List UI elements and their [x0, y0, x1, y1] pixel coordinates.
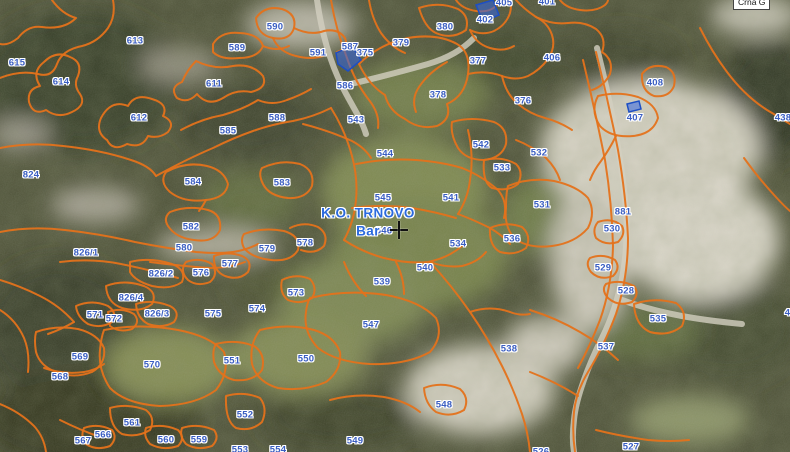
parcel-boundary — [516, 140, 560, 180]
parcel-boundary — [0, 280, 74, 322]
parcel-boundary — [452, 119, 507, 160]
parcel-boundary — [166, 208, 220, 241]
parcel-boundary — [44, 364, 104, 373]
parcel-boundary — [596, 430, 689, 441]
crosshair-icon — [390, 221, 408, 239]
parcel-boundary — [100, 327, 226, 407]
parcel-boundary — [0, 0, 76, 44]
parcel-boundary — [263, 46, 289, 49]
road — [622, 300, 742, 324]
parcel-boundary — [560, 0, 608, 10]
parcel-highlight[interactable] — [627, 101, 641, 112]
parcel-boundary — [484, 159, 521, 190]
parcel-boundary — [251, 327, 340, 390]
parcel-boundary — [29, 54, 82, 115]
parcel-boundary — [0, 310, 29, 372]
parcel-boundary — [260, 162, 312, 198]
roads — [317, 0, 742, 452]
parcel-boundary — [590, 136, 616, 180]
parcel-boundary — [588, 256, 618, 278]
parcel-boundary — [136, 302, 177, 326]
parcel-boundary — [470, 309, 530, 315]
parcel-boundary — [273, 38, 323, 58]
parcel-boundary — [424, 385, 466, 415]
parcel-highlight[interactable] — [476, 0, 499, 22]
parcel-boundary — [181, 426, 216, 448]
parcel-boundary — [303, 124, 371, 158]
parcel-highlight[interactable] — [336, 46, 361, 71]
parcel-boundary — [60, 420, 100, 437]
map-canvas[interactable]: 6156136146126115895855885905915873753793… — [0, 0, 790, 452]
parcel-boundary — [344, 262, 366, 296]
highlighted-parcels — [336, 0, 641, 112]
parcel-boundary — [356, 160, 462, 169]
parcel-boundary — [419, 5, 467, 36]
parcel-boundary — [226, 394, 265, 429]
parcel-boundary — [0, 404, 46, 452]
parcel-boundary — [700, 28, 790, 124]
parcel-boundary — [359, 36, 469, 127]
parcel-boundary — [106, 283, 154, 310]
map-tooltip: Crna G — [733, 0, 770, 10]
parcel-boundary — [642, 66, 675, 96]
parcel-boundary — [99, 97, 171, 147]
parcel-boundary — [330, 396, 420, 412]
parcel-boundary — [430, 262, 530, 452]
parcel-boundary — [306, 293, 439, 364]
parcel-boundary — [163, 164, 228, 200]
parcel-boundary — [183, 260, 215, 284]
parcel-boundary — [506, 180, 592, 247]
parcel-boundary — [396, 262, 404, 294]
parcel-boundary — [594, 220, 623, 243]
parcel-boundary — [502, 76, 572, 130]
parcel-boundary — [174, 61, 264, 102]
parcel-boundary — [331, 108, 357, 240]
parcel-boundary — [594, 94, 658, 137]
parcel-boundary — [242, 230, 298, 261]
parcel-boundary — [344, 240, 462, 263]
road — [573, 48, 627, 452]
parcel-boundary — [256, 8, 295, 39]
parcel-boundary — [352, 206, 456, 218]
parcel-boundary — [458, 214, 510, 244]
parcel-boundary — [213, 33, 263, 59]
parcel-boundary — [181, 89, 311, 130]
parcel-boundary — [0, 144, 156, 176]
parcel-boundary — [530, 372, 578, 396]
parcel-boundary — [744, 158, 790, 211]
